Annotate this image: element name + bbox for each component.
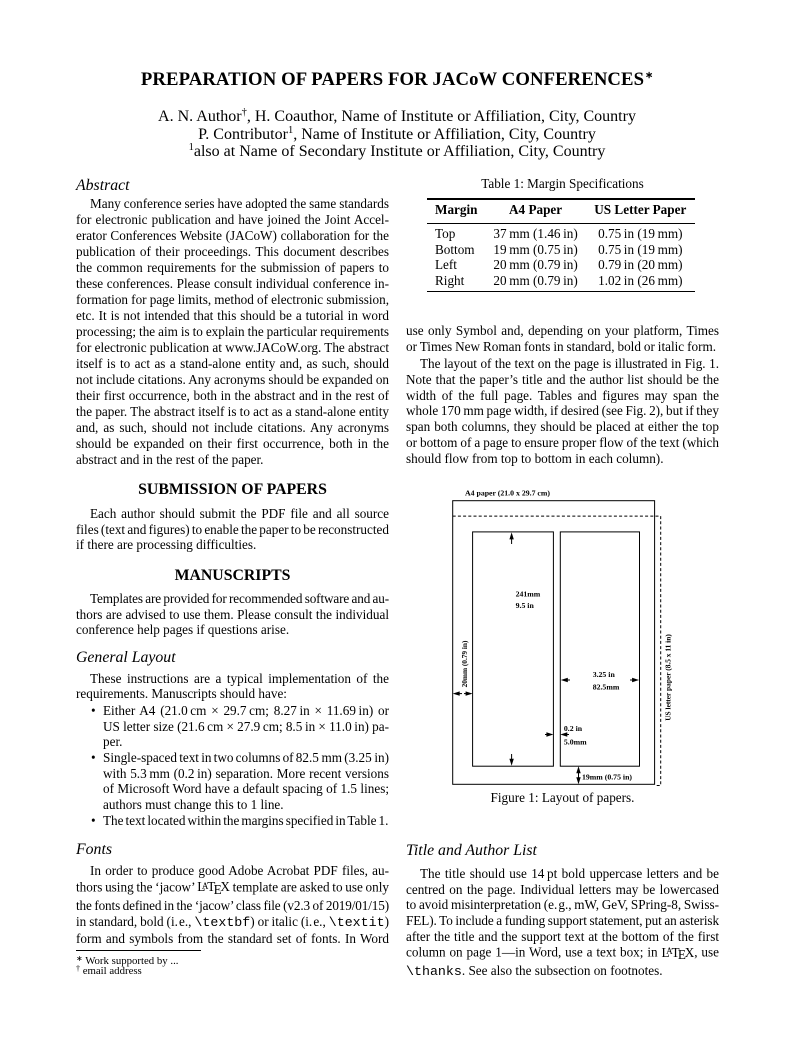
svg-text:9.5 in: 9.5 in — [516, 601, 535, 610]
svg-text:20mm (0.79 in): 20mm (0.79 in) — [460, 640, 469, 687]
svg-text:3.25 in: 3.25 in — [593, 670, 616, 679]
svg-text:82.5mm: 82.5mm — [593, 683, 620, 692]
svg-text:19mm (0.75 in): 19mm (0.75 in) — [582, 773, 632, 782]
svg-text:US letter paper (8.5 x 11 in): US letter paper (8.5 x 11 in) — [664, 634, 673, 721]
svg-text:0.2 in: 0.2 in — [564, 724, 583, 733]
svg-text:241mm: 241mm — [516, 589, 541, 598]
svg-text:A4 paper (21.0 x 29.7 cm): A4 paper (21.0 x 29.7 cm) — [465, 489, 550, 498]
svg-text:5.0mm: 5.0mm — [564, 738, 587, 747]
